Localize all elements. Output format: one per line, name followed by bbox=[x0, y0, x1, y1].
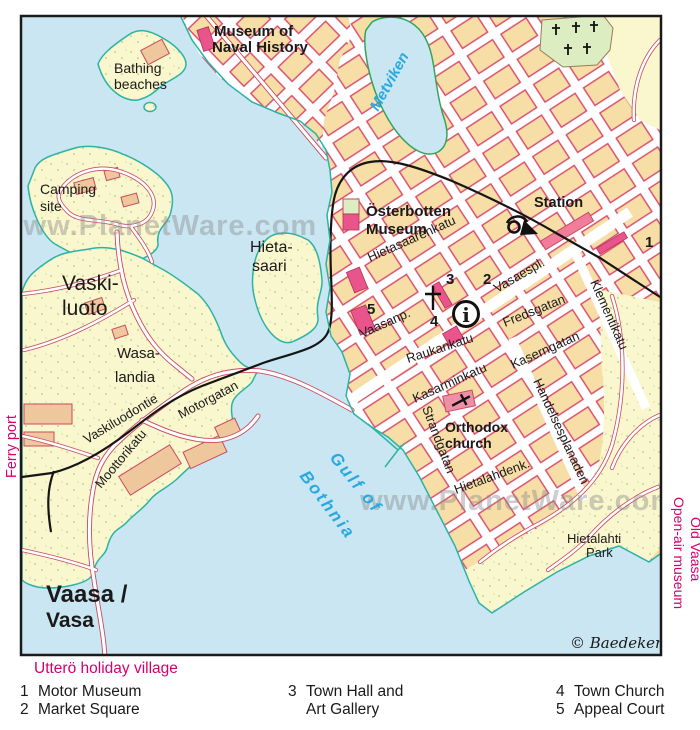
old-vaasa-label: Old Vaasa bbox=[688, 517, 700, 582]
legend-item-label: Town Hall and bbox=[306, 683, 403, 700]
wasalandia-label: Wasa- bbox=[117, 345, 160, 362]
svg-text:i: i bbox=[462, 303, 470, 327]
ferry-terminal-building bbox=[24, 404, 72, 424]
svg-text:luoto: luoto bbox=[62, 297, 108, 320]
osterbotten-museum-building bbox=[343, 214, 359, 230]
svg-text:saari: saari bbox=[252, 258, 287, 275]
naval-museum-label: Museum of bbox=[214, 23, 294, 40]
orthodox-church-label: Orthodox bbox=[445, 419, 508, 435]
legend-item-label: Town Church bbox=[574, 683, 664, 700]
camping-site-label: Camping bbox=[40, 181, 96, 197]
legend-item-number: 5 bbox=[556, 701, 565, 718]
legend-item-label: Market Square bbox=[38, 701, 140, 718]
osterbotten-museum-annex bbox=[343, 199, 359, 214]
station-label: Station bbox=[534, 195, 583, 211]
copyright: © Baedeker bbox=[570, 634, 663, 652]
marker-4-town-church: 4 bbox=[430, 313, 439, 330]
svg-text:Naval History: Naval History bbox=[212, 39, 309, 56]
svg-text:church: church bbox=[445, 435, 492, 451]
ferry-port-label: Ferry port bbox=[4, 415, 20, 478]
legend: 1 Motor Museum 2 Market Square 3 Town Ha… bbox=[20, 683, 665, 718]
legend-item-number: 3 bbox=[288, 683, 297, 700]
legend-item-label: Appeal Court bbox=[574, 701, 665, 718]
legend-item-number: 2 bbox=[20, 701, 29, 718]
marker-5-appeal-court: 5 bbox=[367, 301, 375, 318]
vaasa-city-map-page: i www.PlanetWare.com www.PlanetWare.com … bbox=[0, 0, 700, 730]
vaskiluoto-label: Vaski- bbox=[62, 272, 119, 295]
svg-text:Open-air museum: Open-air museum bbox=[671, 497, 687, 609]
tourist-info-icon: i bbox=[454, 302, 479, 328]
svg-text:beaches: beaches bbox=[114, 76, 167, 92]
hietalahti-park-label: Hietalahti bbox=[567, 531, 621, 546]
legend-item-number: 1 bbox=[20, 683, 29, 700]
svg-text:site: site bbox=[40, 198, 62, 214]
watermark: www.PlanetWare.com bbox=[359, 485, 677, 517]
hietasaari-label: Hieta- bbox=[250, 239, 293, 256]
svg-text:Park: Park bbox=[586, 545, 613, 560]
marker-2-market-square: 2 bbox=[483, 271, 491, 288]
islet bbox=[144, 103, 156, 112]
svg-text:Vasa: Vasa bbox=[46, 609, 94, 632]
legend-item-number: 4 bbox=[556, 683, 565, 700]
marker-1-motor-museum: 1 bbox=[645, 234, 653, 251]
city-title: Vaasa / bbox=[46, 581, 128, 608]
vaasa-map: i www.PlanetWare.com www.PlanetWare.com … bbox=[0, 0, 700, 730]
uttero-label: Utterö holiday village bbox=[34, 660, 178, 677]
marker-3-town-hall: 3 bbox=[446, 271, 454, 288]
watermark: www.PlanetWare.com bbox=[0, 210, 317, 242]
bathing-beaches-label: Bathing bbox=[114, 60, 161, 76]
legend-item-label: Art Gallery bbox=[306, 701, 379, 718]
legend-item-label: Motor Museum bbox=[38, 683, 141, 700]
svg-text:landia: landia bbox=[115, 369, 156, 386]
